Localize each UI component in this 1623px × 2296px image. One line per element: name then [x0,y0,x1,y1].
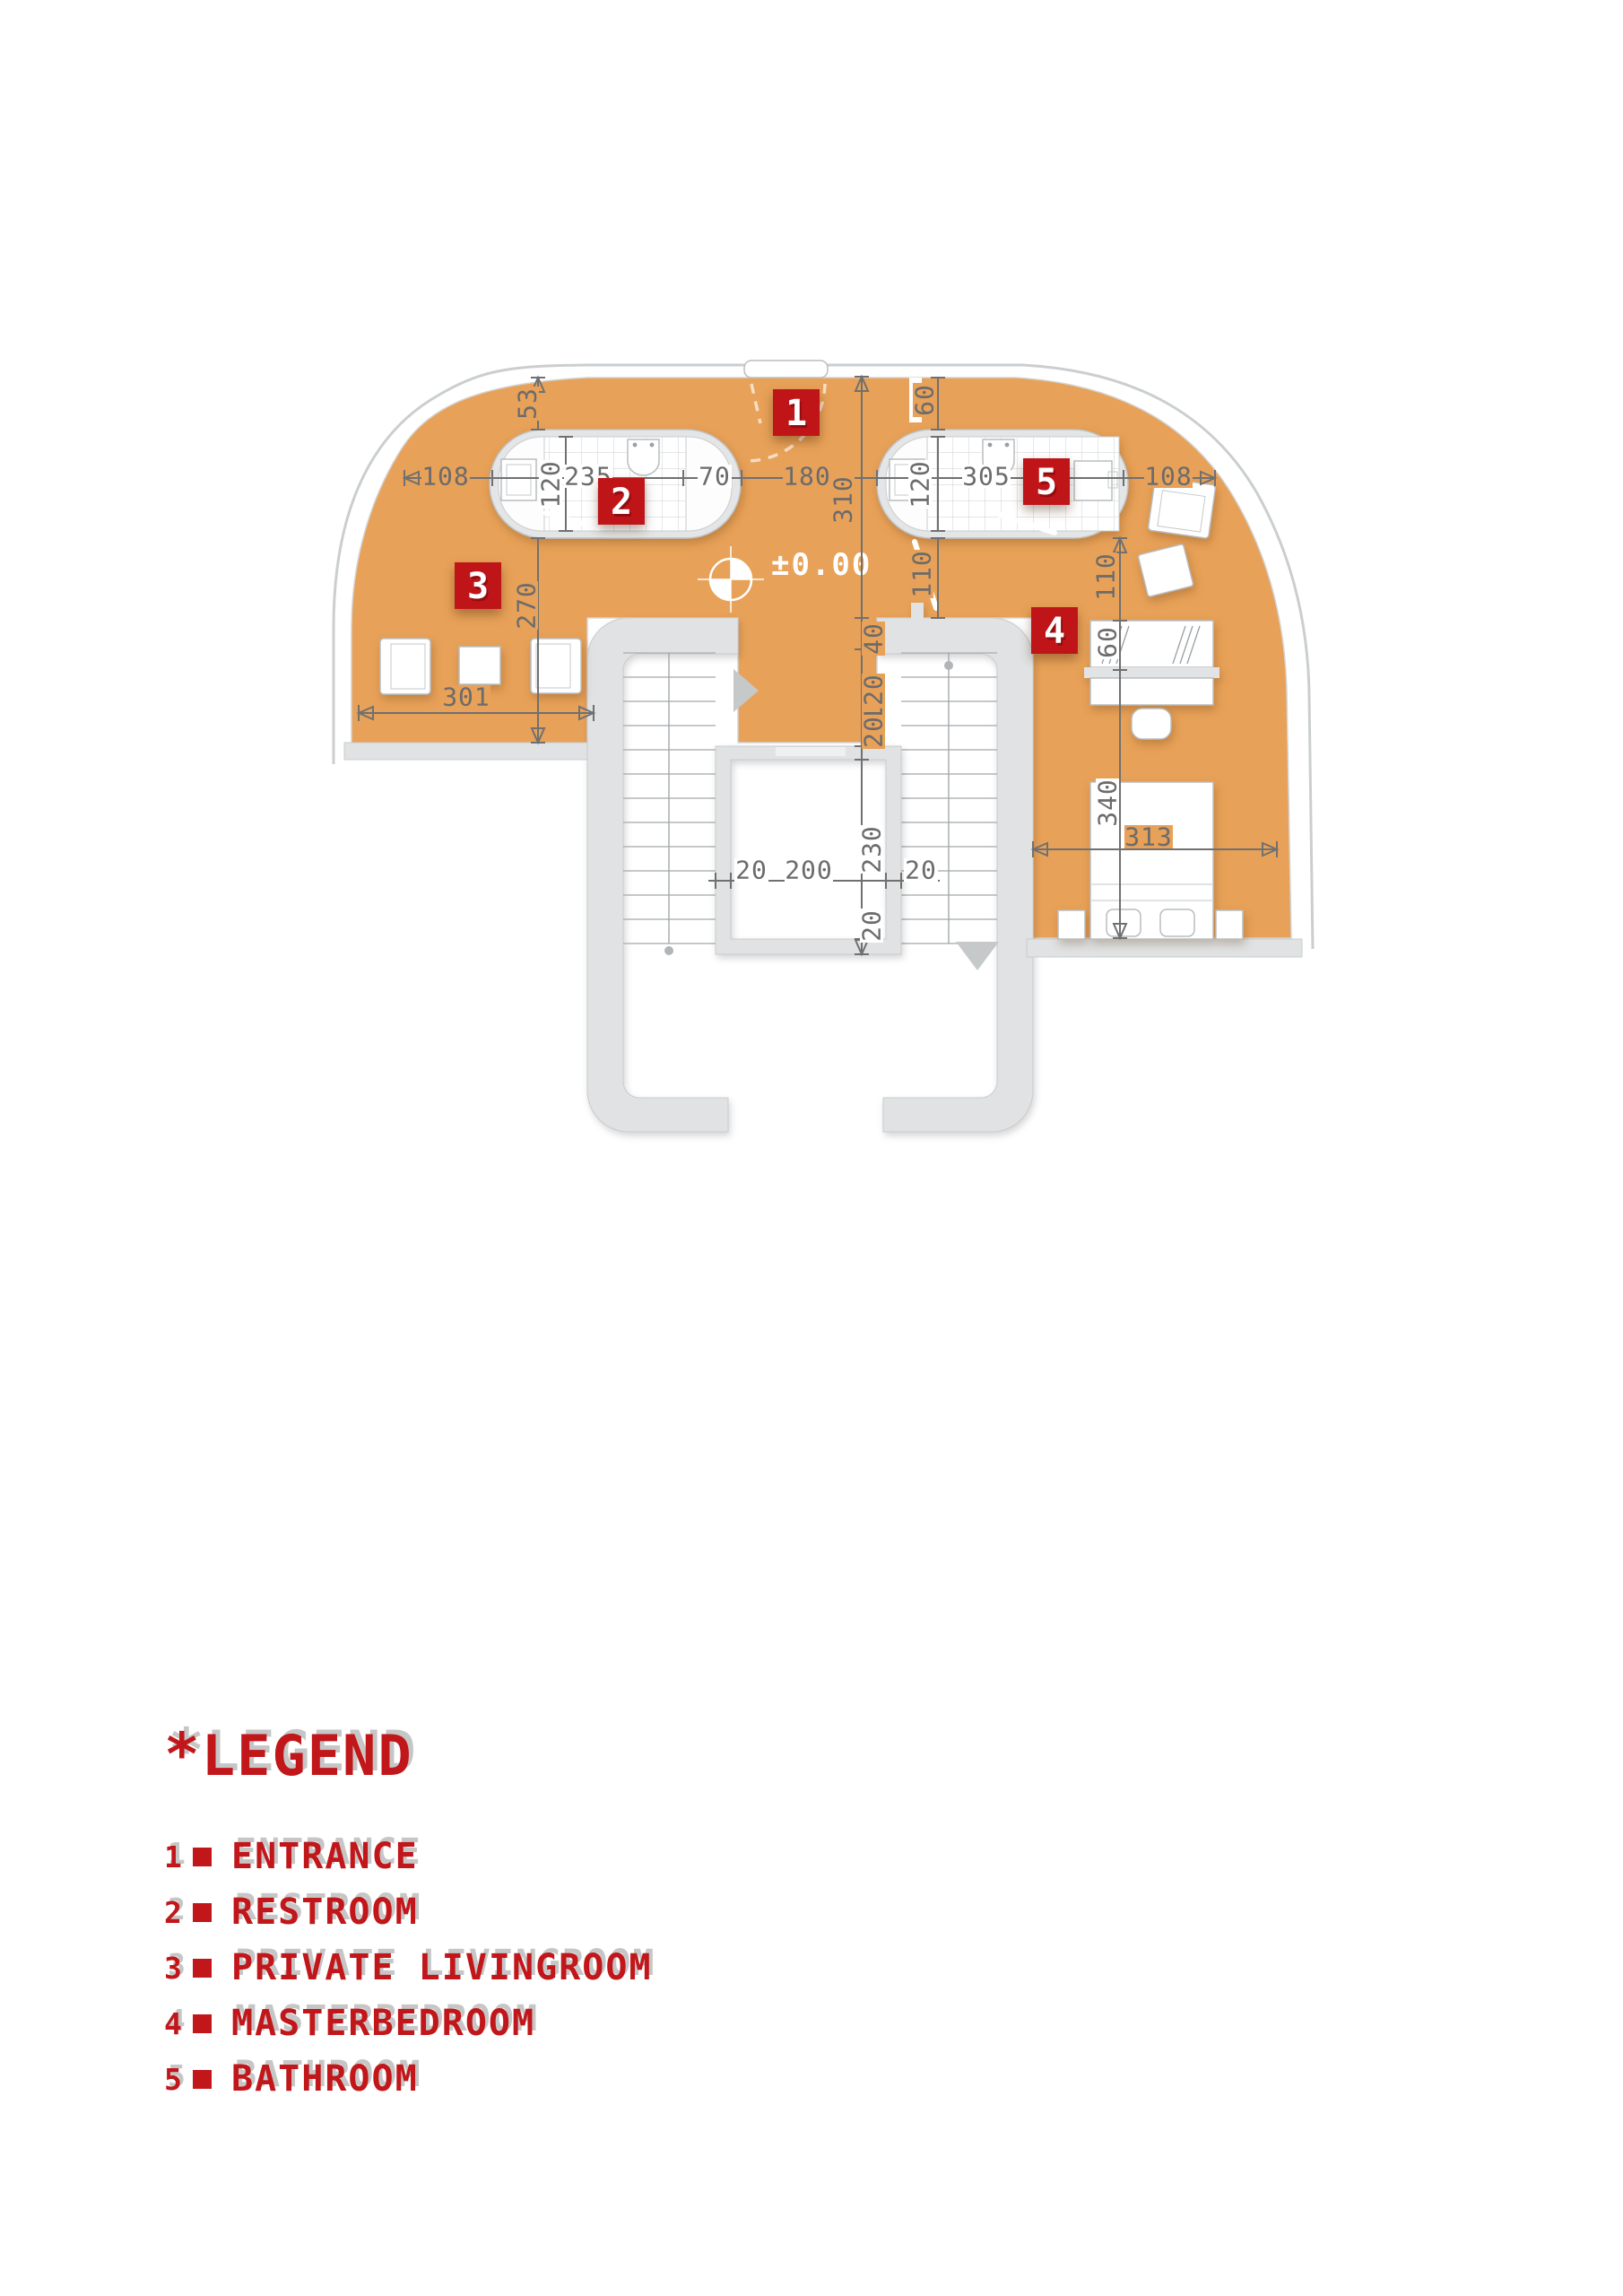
dim-label: 120 [906,460,935,509]
side-table [459,647,500,684]
dim-label: 53 [513,387,542,420]
dim-label: 110 [1091,552,1121,601]
dim-label: 20 [735,856,768,885]
right-staircase [901,653,999,970]
legend-square-icon [193,1903,212,1922]
dim-label: 313 [1124,822,1173,852]
dim-label: 108 [421,462,470,491]
dim-label: 180 [783,462,831,491]
desk-chair [1132,709,1171,739]
dim-label: 310 [829,475,858,524]
elevator-door [776,747,846,756]
marker-private-livingroom: 33 [455,562,501,610]
nightstand [1058,910,1085,939]
legend-square-icon [193,2070,212,2089]
legend-square-icon [193,1959,212,1978]
legend-title: *LEGEND [164,1720,652,1789]
dim-label: 20 [857,909,887,942]
legend-item-number: 5 [164,2062,193,2097]
armchair [380,639,430,694]
legend-item-entrance: 1 ENTRANCE [164,1829,652,1884]
dim-label: 230 [857,825,887,874]
legend-item-number: 2 [164,1895,193,1930]
door-stop-nub [911,603,924,621]
stair-down-arrow [956,942,999,970]
legend-item-private-livingroom: 3 PRIVATE LIVINGROOM [164,1940,652,1996]
legend-item-label: RESTROOM [231,1892,419,1933]
nightstand [1216,910,1243,939]
livingroom-bottom-wall [344,743,587,760]
dim-label: 305 [962,462,1011,491]
marker-masterbedroom: 44 [1031,607,1078,655]
dim-label: 20 [859,716,889,748]
dim-label: 340 [1093,778,1123,827]
dim-label: 301 [442,683,490,712]
level-label: ±0.00 [771,547,872,583]
marker-restroom: 22 [598,478,645,526]
dim-label: 70 [699,462,731,491]
dim-label: 108 [1144,462,1193,491]
bedroom-bottom-wall [1027,939,1302,957]
legend-item-label: ENTRANCE [231,1836,419,1877]
marker-bathroom: 55 [1023,458,1070,506]
svg-text:3: 3 [467,566,489,607]
legend-item-number: 3 [164,1951,193,1986]
dim-label: 60 [910,384,940,416]
sink-icon [1074,461,1112,500]
dim-label: 120 [536,460,566,509]
legend-item-label: PRIVATE LIVINGROOM [231,1947,652,1988]
dim-label: 20 [905,856,937,885]
dim-label: 200 [785,856,833,885]
legend-item-number: 1 [164,1839,193,1874]
svg-text:5: 5 [1036,462,1057,503]
legend: *LEGEND 1 ENTRANCE 2 RESTROOM 3 PRIVATE … [164,1720,652,2107]
legend-item-label: MASTERBEDROOM [231,2003,535,2044]
toilet-icon [628,439,659,475]
dim-label: 120 [859,674,889,722]
legend-square-icon [193,2014,212,2033]
legend-item-masterbedroom: 4 MASTERBEDROOM [164,1996,652,2051]
pillow [1160,909,1194,936]
legend-item-number: 4 [164,2006,193,2041]
asterisk-icon: * [164,1720,202,1789]
dim-label: 40 [859,622,889,655]
legend-item-restroom: 2 RESTROOM [164,1884,652,1940]
dim-label: 60 [1093,626,1123,658]
dim-label: 110 [907,550,937,598]
svg-text:1: 1 [785,393,807,434]
marker-entrance: 11 [773,389,820,437]
svg-text:2: 2 [611,482,632,523]
dim-label: 270 [512,581,542,630]
legend-item-label: BATHROOM [231,2058,419,2100]
left-staircase [623,653,759,955]
svg-text:4: 4 [1044,611,1065,652]
legend-square-icon [193,1848,212,1866]
legend-item-bathroom: 5 BATHROOM [164,2051,652,2107]
